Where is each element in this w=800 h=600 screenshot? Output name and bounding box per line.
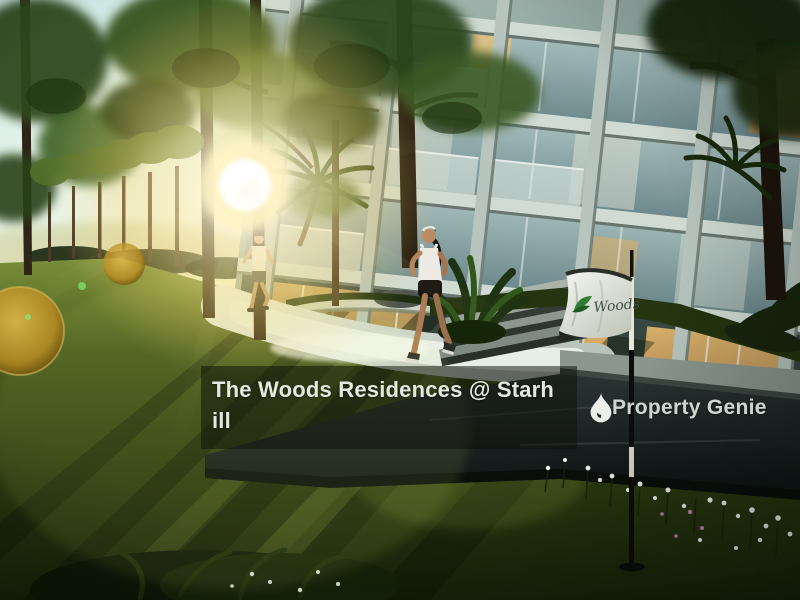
- watermark-brand: Property Genie: [612, 396, 767, 420]
- scene-render: Woods: [0, 0, 800, 600]
- property-photo: Woods The Woods Residences @ Starh ill P…: [0, 0, 800, 600]
- flame-genie-icon: [588, 391, 614, 423]
- property-genie-watermark: Property Genie: [588, 391, 800, 425]
- vignette: [0, 0, 800, 600]
- listing-title-overlay: The Woods Residences @ Starh ill: [201, 366, 577, 449]
- listing-title-line2: ill: [212, 405, 567, 436]
- listing-title-line1: The Woods Residences @ Starh: [212, 374, 567, 405]
